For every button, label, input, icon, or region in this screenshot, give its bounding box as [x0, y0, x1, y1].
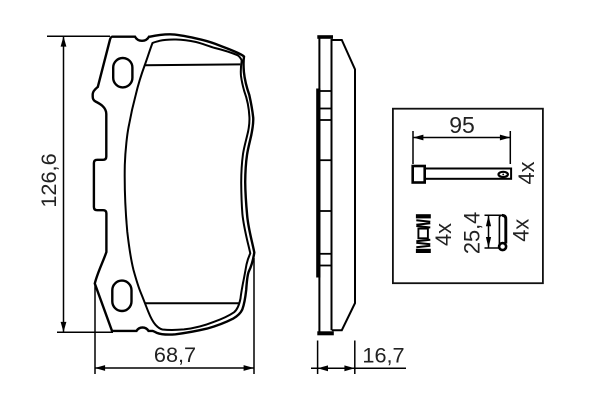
- svg-text:4x: 4x: [509, 219, 534, 242]
- svg-text:4x: 4x: [431, 223, 456, 246]
- svg-text:68,7: 68,7: [154, 342, 196, 367]
- svg-text:25,4: 25,4: [460, 212, 485, 254]
- svg-text:95: 95: [449, 112, 475, 138]
- svg-text:16,7: 16,7: [362, 342, 404, 367]
- svg-text:4x: 4x: [514, 161, 539, 184]
- svg-text:126,6: 126,6: [36, 153, 61, 207]
